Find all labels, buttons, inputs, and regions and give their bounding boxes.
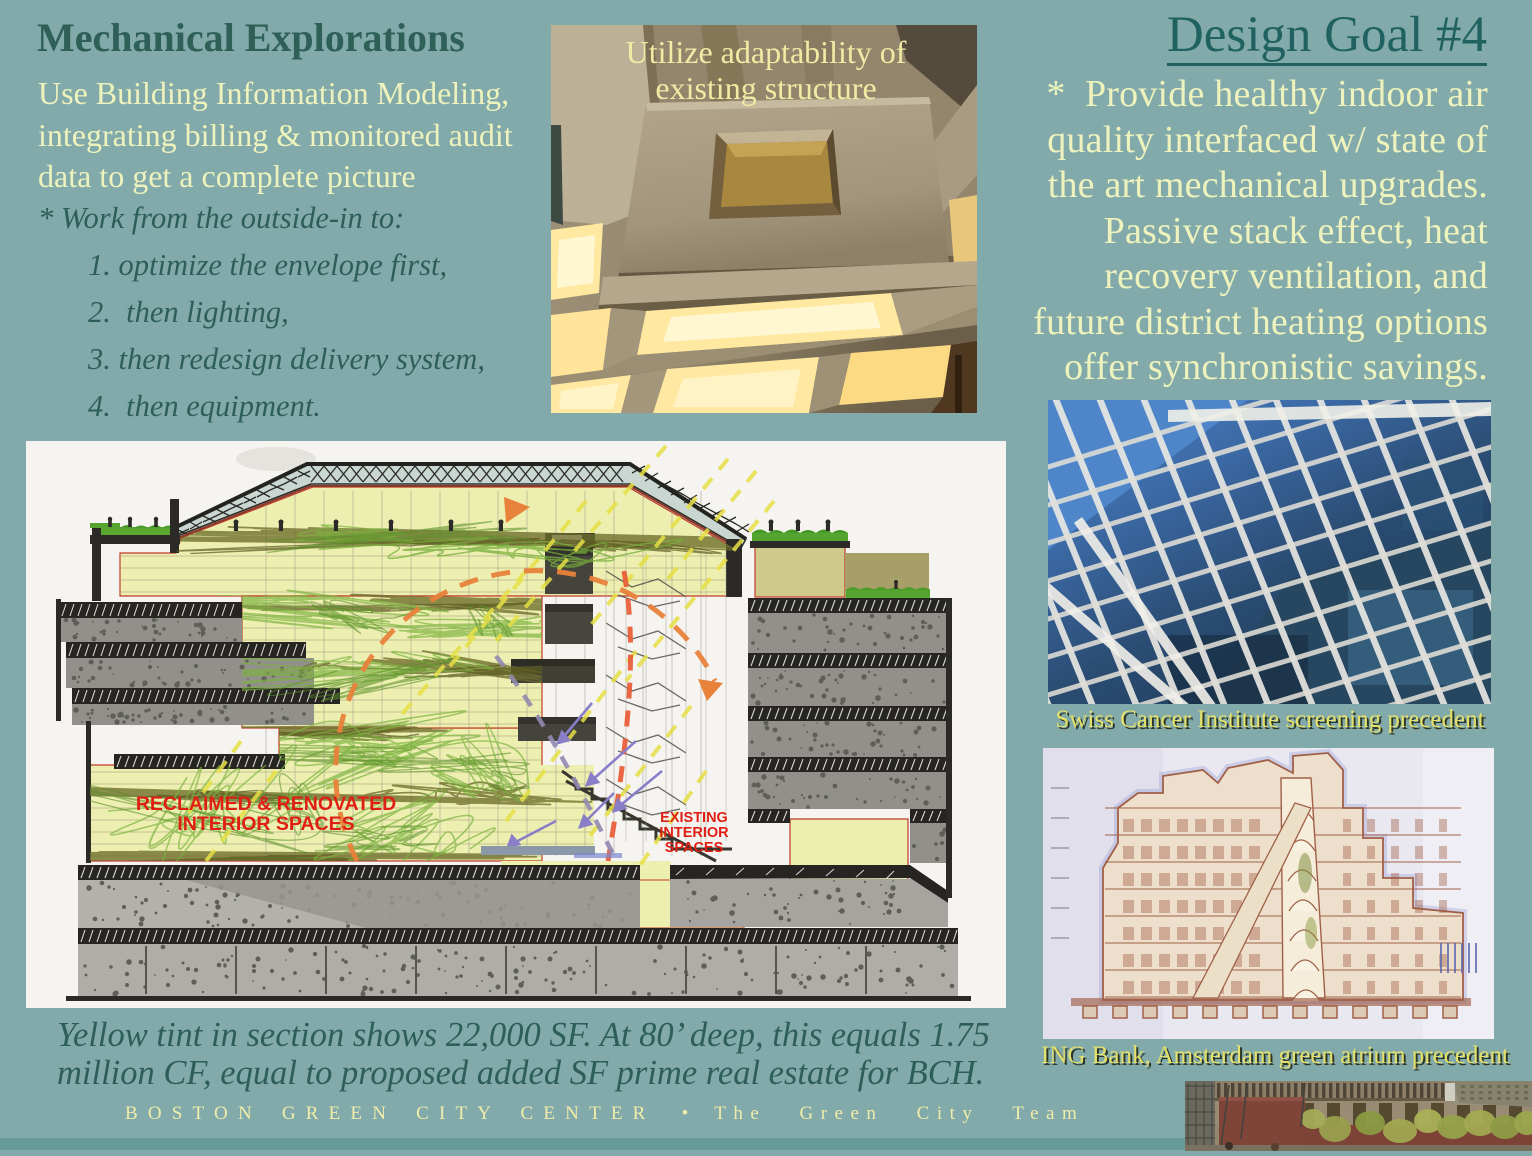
svg-text:RECLAIMED & RENOVATED: RECLAIMED & RENOVATED bbox=[136, 793, 396, 815]
svg-text:SPACES: SPACES bbox=[665, 840, 724, 856]
svg-text:EXISTING: EXISTING bbox=[660, 810, 728, 826]
svg-text:Utilize adaptability of: Utilize adaptability of bbox=[626, 34, 907, 70]
svg-text:existing structure: existing structure bbox=[655, 70, 876, 106]
svg-text:INTERIOR: INTERIOR bbox=[659, 825, 729, 841]
svg-text:INTERIOR SPACES: INTERIOR SPACES bbox=[177, 813, 354, 835]
